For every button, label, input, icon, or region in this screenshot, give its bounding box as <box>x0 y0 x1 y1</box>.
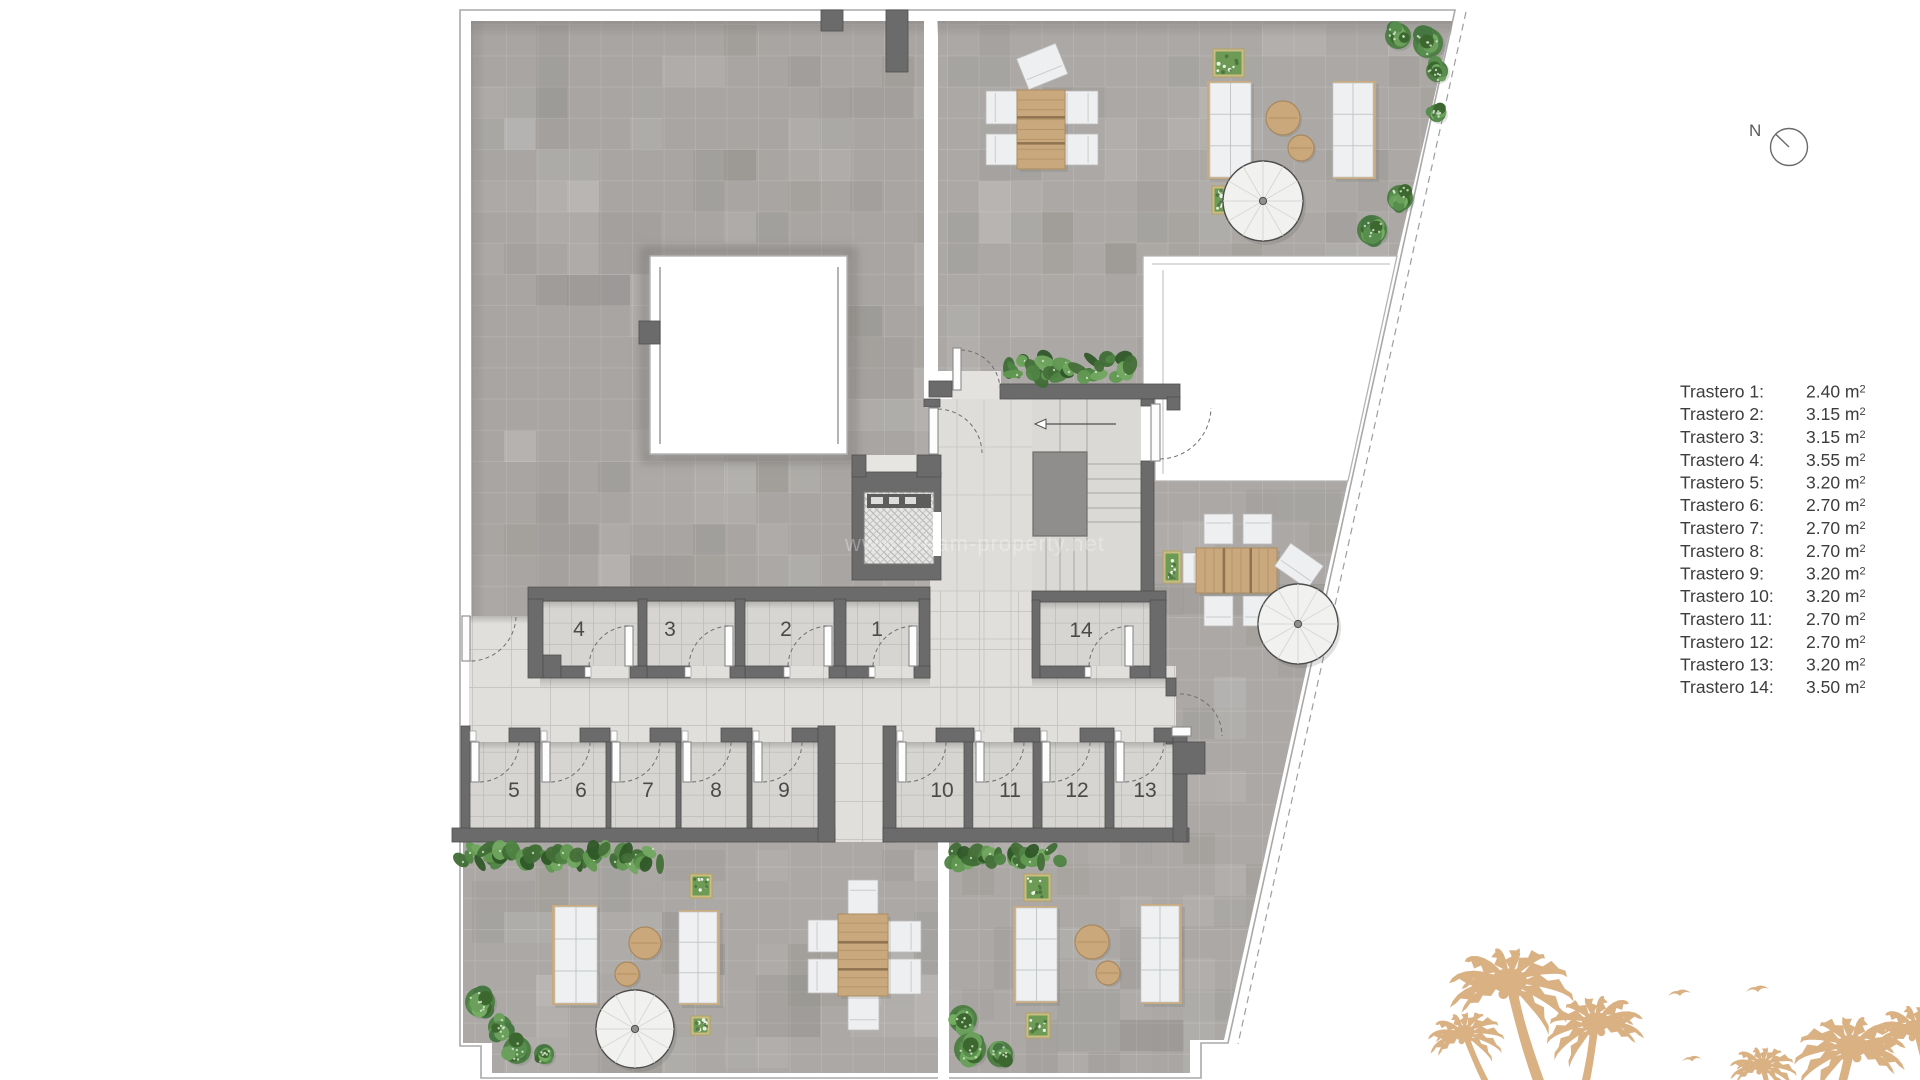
svg-text:Trastero 8:: Trastero 8: <box>1680 541 1764 561</box>
svg-text:4: 4 <box>573 618 585 641</box>
svg-text:2.70 m2: 2.70 m2 <box>1806 632 1866 652</box>
svg-text:Trastero 1:: Trastero 1: <box>1680 382 1764 402</box>
svg-text:8: 8 <box>710 779 722 802</box>
svg-text:11: 11 <box>999 779 1021 802</box>
svg-text:2.70 m2: 2.70 m2 <box>1806 541 1866 561</box>
svg-text:5: 5 <box>508 779 520 802</box>
svg-text:Trastero 3:: Trastero 3: <box>1680 427 1764 447</box>
svg-text:3.55 m2: 3.55 m2 <box>1806 450 1866 470</box>
svg-text:N: N <box>1749 121 1761 140</box>
svg-text:Trastero 4:: Trastero 4: <box>1680 450 1764 470</box>
svg-text:7: 7 <box>642 779 654 802</box>
svg-text:Trastero 12:: Trastero 12: <box>1680 632 1774 652</box>
svg-text:3.15 m2: 3.15 m2 <box>1806 404 1866 424</box>
svg-text:13: 13 <box>1133 779 1156 802</box>
svg-text:3.15 m2: 3.15 m2 <box>1806 427 1866 447</box>
svg-text:2.70 m2: 2.70 m2 <box>1806 609 1866 629</box>
svg-text:2: 2 <box>780 618 792 641</box>
svg-text:Trastero 5:: Trastero 5: <box>1680 473 1764 493</box>
svg-text:Trastero 9:: Trastero 9: <box>1680 564 1764 584</box>
svg-text:www.dream-property.net: www.dream-property.net <box>844 531 1105 556</box>
svg-text:12: 12 <box>1065 779 1088 802</box>
svg-text:3.20 m2: 3.20 m2 <box>1806 586 1866 606</box>
svg-text:Trastero 6:: Trastero 6: <box>1680 495 1764 515</box>
svg-text:3.50 m2: 3.50 m2 <box>1806 677 1866 697</box>
svg-text:3.20 m2: 3.20 m2 <box>1806 655 1866 675</box>
svg-text:6: 6 <box>575 779 587 802</box>
svg-text:2.70 m2: 2.70 m2 <box>1806 518 1866 538</box>
svg-text:3: 3 <box>664 618 676 641</box>
svg-text:9: 9 <box>778 779 790 802</box>
svg-text:Trastero 11:: Trastero 11: <box>1680 609 1772 629</box>
svg-text:Trastero 13:: Trastero 13: <box>1680 655 1774 675</box>
svg-text:3.20 m2: 3.20 m2 <box>1806 473 1866 493</box>
svg-text:Trastero 14:: Trastero 14: <box>1680 677 1774 697</box>
svg-text:2.70 m2: 2.70 m2 <box>1806 495 1866 515</box>
svg-text:Trastero 2:: Trastero 2: <box>1680 404 1764 424</box>
svg-text:2.40 m2: 2.40 m2 <box>1806 382 1866 402</box>
svg-text:3.20 m2: 3.20 m2 <box>1806 564 1866 584</box>
svg-text:10: 10 <box>930 779 953 802</box>
svg-text:14: 14 <box>1069 619 1093 642</box>
svg-text:Trastero 10:: Trastero 10: <box>1680 586 1774 606</box>
svg-text:Trastero 7:: Trastero 7: <box>1680 518 1764 538</box>
svg-text:1: 1 <box>871 618 883 641</box>
